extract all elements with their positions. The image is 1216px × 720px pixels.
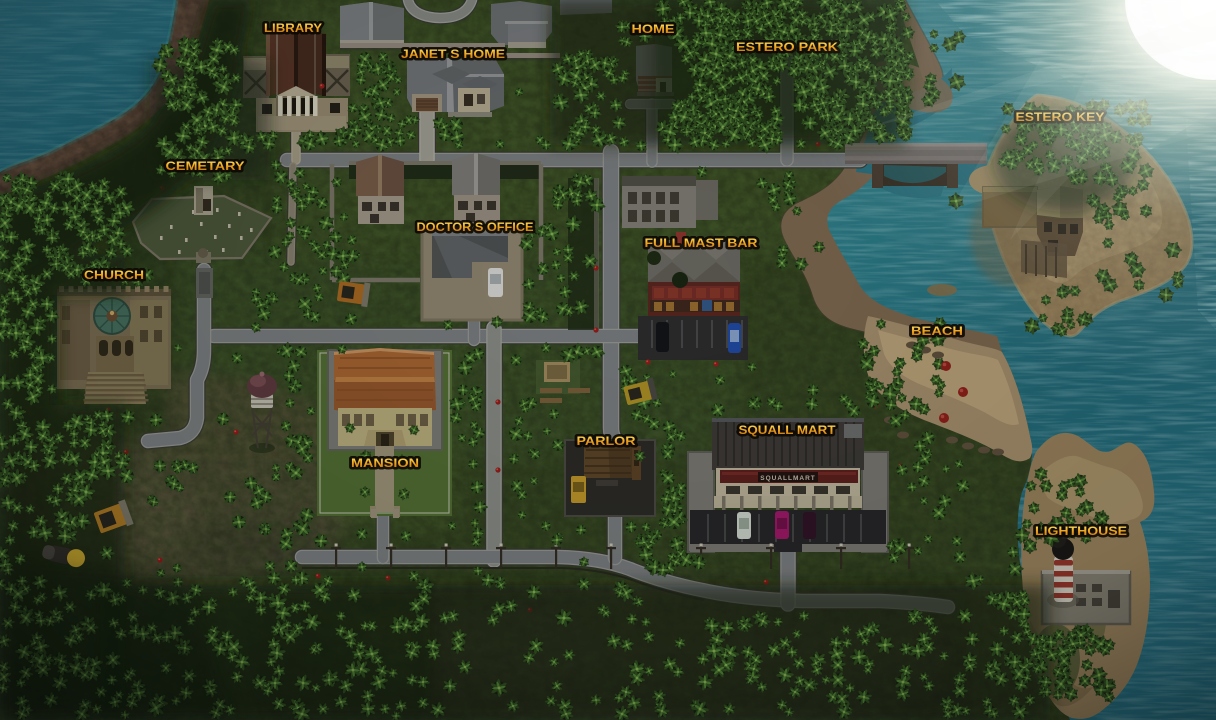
svg-text:LIGHTHOUSE: LIGHTHOUSE (1035, 524, 1127, 538)
svg-text:SQUALL MART: SQUALL MART (739, 423, 836, 437)
svg-text:FULL MAST BAR: FULL MAST BAR (645, 236, 758, 250)
svg-text:CEMETARY: CEMETARY (166, 159, 246, 173)
svg-text:DOCTOR S OFFICE: DOCTOR S OFFICE (417, 220, 534, 234)
svg-text:HOME: HOME (632, 22, 675, 36)
svg-text:JANET S HOME: JANET S HOME (401, 47, 505, 61)
svg-text:CHURCH: CHURCH (84, 268, 144, 282)
svg-text:LIBRARY: LIBRARY (264, 21, 323, 35)
svg-text:BEACH: BEACH (911, 324, 963, 338)
svg-text:PARLOR: PARLOR (577, 434, 636, 448)
svg-text:MANSION: MANSION (351, 456, 419, 470)
